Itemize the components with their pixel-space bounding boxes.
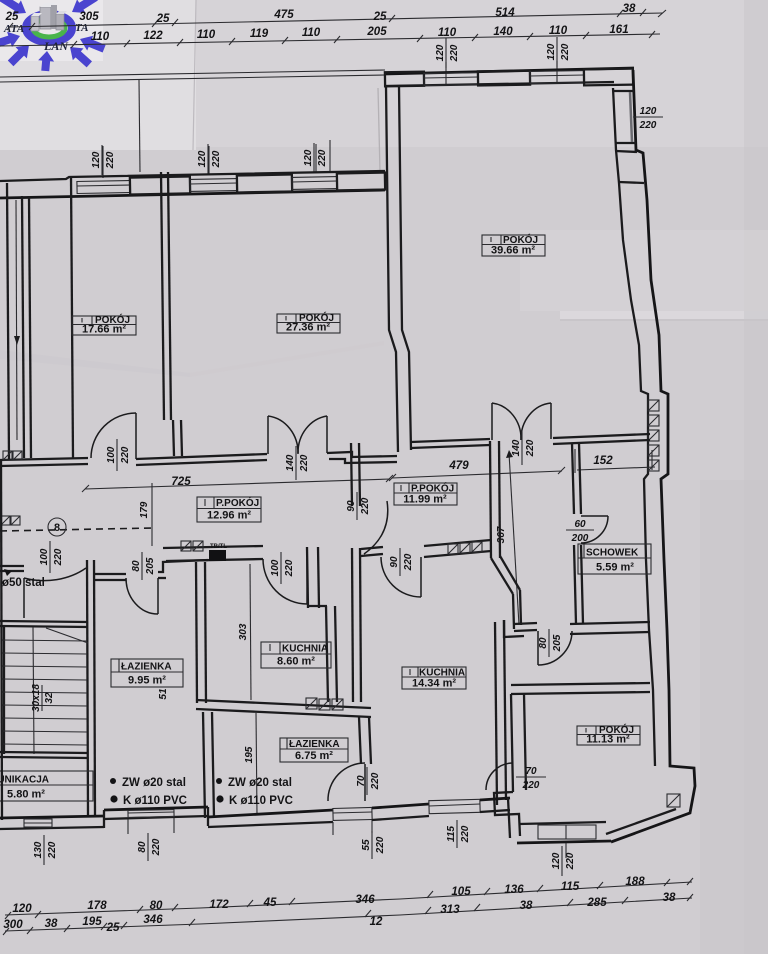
svg-text:38: 38 bbox=[45, 918, 58, 930]
svg-text:38: 38 bbox=[663, 892, 676, 904]
svg-text:220: 220 bbox=[284, 559, 295, 577]
svg-text:90: 90 bbox=[389, 556, 400, 568]
svg-text:220: 220 bbox=[360, 497, 371, 515]
svg-text:122: 122 bbox=[143, 30, 163, 42]
svg-text:346: 346 bbox=[143, 914, 163, 926]
svg-text:313: 313 bbox=[440, 904, 460, 916]
svg-text:220: 220 bbox=[565, 852, 576, 870]
svg-text:120: 120 bbox=[435, 44, 446, 61]
svg-text:220: 220 bbox=[525, 439, 536, 457]
svg-text:6.75 m²: 6.75 m² bbox=[295, 750, 333, 762]
svg-text:9.95 m²: 9.95 m² bbox=[128, 675, 166, 687]
svg-text:ø50 stal: ø50 stal bbox=[2, 577, 45, 589]
svg-text:195: 195 bbox=[82, 916, 102, 928]
svg-text:300: 300 bbox=[3, 919, 23, 931]
svg-text:LAN: LAN bbox=[43, 39, 69, 53]
svg-text:12.96 m²: 12.96 m² bbox=[207, 510, 251, 522]
svg-text:119: 119 bbox=[250, 28, 269, 40]
svg-text:8.60 m²: 8.60 m² bbox=[277, 656, 315, 668]
svg-text:P.POKÓJ: P.POKÓJ bbox=[216, 496, 259, 509]
svg-text:25: 25 bbox=[5, 11, 19, 23]
svg-text:ŁAZIENKA: ŁAZIENKA bbox=[289, 739, 340, 750]
svg-text:179: 179 bbox=[139, 501, 150, 518]
svg-text:220: 220 bbox=[403, 553, 414, 571]
svg-text:25: 25 bbox=[373, 11, 387, 23]
svg-text:110: 110 bbox=[302, 27, 321, 39]
svg-text:479: 479 bbox=[448, 460, 469, 472]
svg-text:90: 90 bbox=[346, 500, 357, 512]
svg-text:220: 220 bbox=[105, 151, 116, 169]
svg-text:11.99 m²: 11.99 m² bbox=[403, 494, 447, 506]
svg-text:SCHOWEK: SCHOWEK bbox=[586, 548, 639, 559]
svg-text:51: 51 bbox=[158, 688, 169, 700]
svg-text:38: 38 bbox=[623, 3, 636, 15]
svg-text:45: 45 bbox=[263, 897, 277, 909]
svg-text:220: 220 bbox=[370, 772, 381, 790]
svg-text:110: 110 bbox=[91, 31, 110, 43]
svg-text:12: 12 bbox=[370, 916, 383, 928]
svg-text:220: 220 bbox=[522, 780, 540, 791]
svg-text:220: 220 bbox=[317, 149, 328, 167]
svg-text:100: 100 bbox=[39, 548, 50, 565]
svg-text:152: 152 bbox=[593, 455, 613, 467]
svg-text:303: 303 bbox=[238, 623, 249, 640]
svg-text:32: 32 bbox=[44, 692, 55, 704]
svg-text:K ø110 PVC: K ø110 PVC bbox=[229, 795, 293, 807]
svg-text:140: 140 bbox=[511, 439, 522, 456]
svg-text:ZW ø20 stal: ZW ø20 stal bbox=[228, 777, 292, 789]
svg-text:25: 25 bbox=[106, 922, 120, 934]
svg-text:220: 220 bbox=[120, 446, 131, 464]
svg-text:39.66 m²: 39.66 m² bbox=[491, 245, 535, 257]
svg-text:100: 100 bbox=[270, 559, 281, 576]
svg-text:5.59 m²: 5.59 m² bbox=[596, 562, 634, 574]
svg-text:120: 120 bbox=[91, 151, 102, 168]
svg-text:80: 80 bbox=[150, 900, 163, 912]
svg-text:TA: TA bbox=[75, 22, 88, 34]
svg-text:205: 205 bbox=[552, 634, 563, 652]
svg-text:220: 220 bbox=[639, 120, 657, 131]
svg-text:220: 220 bbox=[151, 838, 162, 856]
svg-text:ZW ø20 stal: ZW ø20 stal bbox=[122, 777, 186, 789]
svg-text:60: 60 bbox=[574, 519, 586, 530]
svg-text:80: 80 bbox=[538, 637, 549, 649]
svg-text:220: 220 bbox=[375, 836, 386, 854]
svg-text:105: 105 bbox=[451, 886, 471, 898]
svg-text:ŁAZIENKA: ŁAZIENKA bbox=[121, 662, 172, 673]
svg-text:38: 38 bbox=[520, 900, 533, 912]
svg-text:140: 140 bbox=[493, 26, 513, 38]
svg-text:110: 110 bbox=[549, 25, 568, 37]
svg-text:220: 220 bbox=[560, 43, 571, 61]
svg-text:136: 136 bbox=[504, 884, 524, 896]
svg-text:25: 25 bbox=[156, 13, 170, 25]
svg-text:27.36 m²: 27.36 m² bbox=[286, 322, 330, 334]
svg-text:285: 285 bbox=[586, 897, 607, 909]
svg-text:ATA: ATA bbox=[3, 23, 24, 35]
svg-text:115: 115 bbox=[561, 881, 580, 893]
svg-text:30x18: 30x18 bbox=[31, 684, 42, 712]
svg-text:80: 80 bbox=[131, 560, 142, 572]
svg-text:KUCHNIA: KUCHNIA bbox=[282, 644, 328, 655]
svg-text:172: 172 bbox=[209, 899, 229, 911]
svg-text:120: 120 bbox=[303, 149, 314, 166]
svg-text:5.80 m²: 5.80 m² bbox=[7, 789, 45, 801]
svg-text:140: 140 bbox=[285, 454, 296, 471]
svg-text:120: 120 bbox=[551, 852, 562, 869]
svg-text:110: 110 bbox=[438, 27, 457, 39]
svg-text:161: 161 bbox=[609, 24, 628, 36]
svg-text:TB/TL: TB/TL bbox=[210, 544, 227, 550]
svg-text:205: 205 bbox=[145, 557, 156, 575]
svg-text:178: 178 bbox=[87, 900, 107, 912]
svg-text:120: 120 bbox=[640, 106, 657, 117]
svg-text:17.66 m²: 17.66 m² bbox=[82, 324, 126, 336]
svg-text:195: 195 bbox=[244, 746, 255, 763]
svg-text:110: 110 bbox=[197, 29, 216, 41]
svg-text:8: 8 bbox=[54, 522, 60, 534]
svg-text:70: 70 bbox=[356, 775, 367, 787]
svg-text:115: 115 bbox=[446, 826, 457, 842]
svg-text:188: 188 bbox=[625, 876, 645, 888]
svg-text:220: 220 bbox=[299, 454, 310, 472]
svg-text:205: 205 bbox=[366, 26, 387, 38]
svg-text:100: 100 bbox=[106, 446, 117, 463]
svg-text:200: 200 bbox=[571, 533, 589, 544]
svg-text:120: 120 bbox=[197, 150, 208, 167]
svg-text:305: 305 bbox=[79, 11, 99, 23]
svg-text:475: 475 bbox=[273, 9, 294, 21]
svg-text:70: 70 bbox=[525, 766, 537, 777]
svg-text:120: 120 bbox=[12, 903, 32, 915]
svg-text:725: 725 bbox=[171, 476, 191, 488]
svg-text:80: 80 bbox=[137, 841, 148, 853]
svg-text:367: 367 bbox=[496, 526, 507, 543]
svg-text:220: 220 bbox=[460, 825, 471, 843]
svg-text:KOMUNIKACJA: KOMUNIKACJA bbox=[0, 775, 49, 786]
svg-text:514: 514 bbox=[495, 7, 515, 19]
svg-text:14.34 m²: 14.34 m² bbox=[412, 678, 456, 690]
svg-text:220: 220 bbox=[449, 44, 460, 62]
svg-text:220: 220 bbox=[47, 841, 58, 859]
svg-text:346: 346 bbox=[355, 894, 375, 906]
svg-text:120: 120 bbox=[546, 43, 557, 60]
svg-text:55: 55 bbox=[361, 839, 372, 851]
svg-text:11.13 m²: 11.13 m² bbox=[586, 734, 630, 746]
svg-text:K ø110 PVC: K ø110 PVC bbox=[123, 795, 187, 807]
svg-text:130: 130 bbox=[33, 841, 44, 858]
svg-text:220: 220 bbox=[53, 548, 64, 566]
svg-text:220: 220 bbox=[211, 150, 222, 168]
